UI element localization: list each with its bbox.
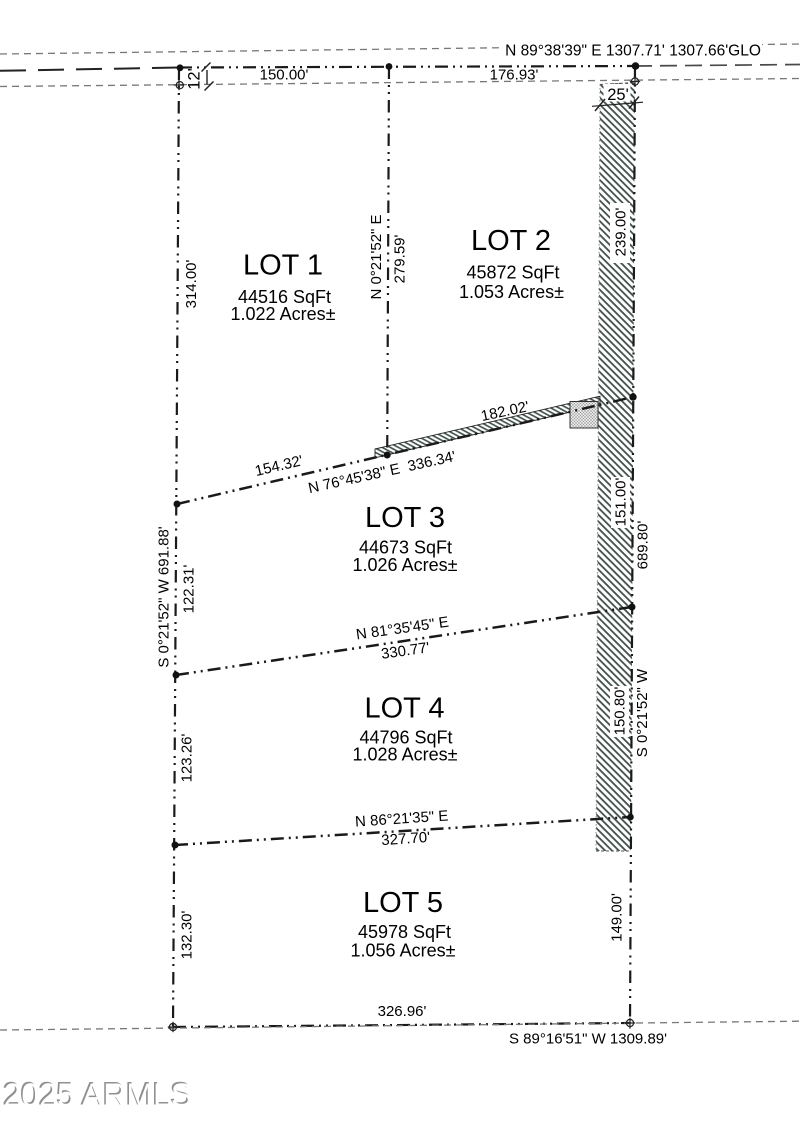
svg-text:689.80': 689.80' — [635, 520, 652, 569]
svg-text:326.96': 326.96' — [378, 1003, 427, 1020]
svg-text:149.00': 149.00' — [609, 893, 626, 942]
svg-text:132.30': 132.30' — [179, 910, 196, 959]
svg-text:25': 25' — [607, 86, 629, 104]
svg-text:1.053 Acres±: 1.053 Acres± — [459, 282, 564, 302]
svg-text:279.59': 279.59' — [392, 234, 409, 283]
svg-text:176.93': 176.93' — [490, 67, 539, 84]
svg-text:N 89°38'39" E 1307.71' 1307.66: N 89°38'39" E 1307.71' 1307.66'GLO — [505, 43, 761, 60]
svg-text:S 89°16'51" W 1309.89': S 89°16'51" W 1309.89' — [509, 1031, 667, 1048]
svg-text:LOT 5: LOT 5 — [363, 887, 443, 919]
svg-text:314.00': 314.00' — [183, 259, 200, 308]
svg-text:2025 ARMLS: 2025 ARMLS — [4, 1077, 193, 1113]
svg-text:LOT 4: LOT 4 — [364, 693, 444, 725]
svg-text:LOT 1: LOT 1 — [243, 250, 323, 282]
svg-text:S 0°21'52" W: S 0°21'52" W — [634, 668, 651, 757]
svg-text:1.022 Acres±: 1.022 Acres± — [231, 304, 336, 324]
svg-text:1.056 Acres±: 1.056 Acres± — [351, 941, 456, 961]
svg-text:151.00': 151.00' — [613, 477, 630, 526]
svg-text:12': 12' — [186, 68, 204, 90]
svg-text:N 0°21'52" E: N 0°21'52" E — [368, 214, 385, 299]
svg-text:150.80': 150.80' — [612, 686, 629, 735]
svg-text:LOT 3: LOT 3 — [365, 502, 445, 534]
svg-text:122.31': 122.31' — [181, 564, 198, 613]
svg-text:1.028 Acres±: 1.028 Acres± — [353, 745, 458, 765]
svg-text:327.70': 327.70' — [381, 829, 431, 849]
svg-text:S 0°21'52" W 691.88': S 0°21'52" W 691.88' — [156, 526, 173, 667]
svg-text:1.026 Acres±: 1.026 Acres± — [353, 555, 458, 575]
svg-text:45978 SqFt: 45978 SqFt — [358, 922, 451, 942]
svg-text:123.26': 123.26' — [179, 733, 196, 782]
svg-text:45872 SqFt: 45872 SqFt — [466, 263, 559, 283]
svg-text:150.00': 150.00' — [260, 67, 309, 84]
svg-text:239.00': 239.00' — [613, 207, 630, 256]
svg-text:LOT 2: LOT 2 — [471, 225, 551, 257]
